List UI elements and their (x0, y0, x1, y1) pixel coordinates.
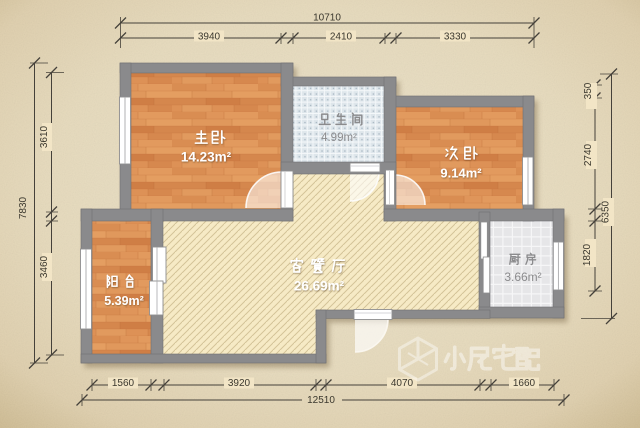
svg-text:7830: 7830 (18, 196, 29, 219)
svg-text:3940: 3940 (198, 32, 221, 43)
svg-text:26.69m²: 26.69m² (294, 279, 345, 294)
svg-text:2410: 2410 (330, 32, 353, 43)
svg-text:2740: 2740 (583, 143, 594, 166)
svg-text:3460: 3460 (39, 255, 50, 278)
svg-text:4.99m²: 4.99m² (321, 132, 357, 144)
svg-text:4070: 4070 (391, 378, 414, 389)
svg-text:9.14m²: 9.14m² (440, 166, 482, 181)
svg-text:1820: 1820 (582, 243, 593, 266)
svg-text:6350: 6350 (601, 200, 612, 223)
svg-text:3610: 3610 (39, 125, 50, 148)
svg-text:5.39m²: 5.39m² (104, 294, 144, 308)
svg-text:1660: 1660 (513, 378, 536, 389)
svg-text:10710: 10710 (313, 13, 341, 24)
svg-text:3330: 3330 (444, 32, 467, 43)
svg-text:3.66m²: 3.66m² (504, 270, 541, 284)
svg-text:12510: 12510 (307, 395, 335, 406)
svg-text:14.23m²: 14.23m² (181, 150, 232, 165)
svg-text:1560: 1560 (112, 378, 135, 389)
svg-text:3920: 3920 (228, 378, 251, 389)
svg-text:350: 350 (583, 82, 594, 99)
